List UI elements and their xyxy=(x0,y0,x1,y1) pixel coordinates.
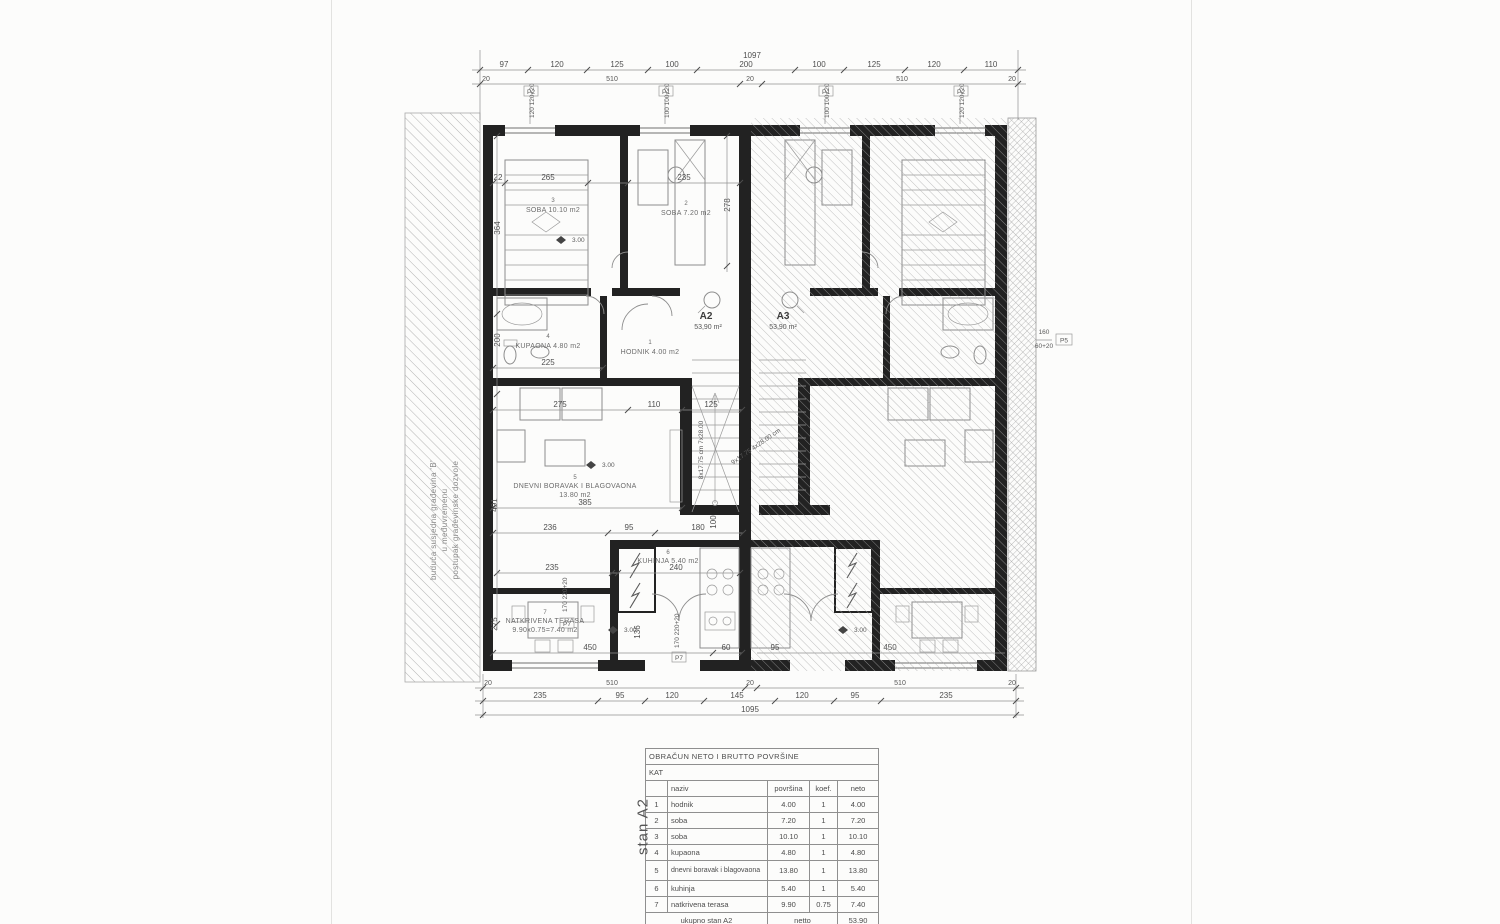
dim-top-seg: 110 xyxy=(985,60,998,69)
dim-top-center: 20 xyxy=(746,76,754,83)
footer-label: ukupno stan A2 xyxy=(646,913,768,924)
window-tag-p1-left-code: P1 xyxy=(662,89,670,96)
row-area: 10.10 xyxy=(768,829,810,845)
room5-label: DNEVNI BORAVAK I BLAGOVAONA xyxy=(513,483,636,490)
row-coef: 1 xyxy=(810,829,838,845)
dim-bot-seg: 235 xyxy=(939,691,953,700)
dim-top-seg: 125 xyxy=(867,60,881,69)
row-coef: 1 xyxy=(810,845,838,861)
unit-a3-name: A3 xyxy=(777,311,790,322)
room4-number: 4 xyxy=(546,334,550,340)
row-net: 10.10 xyxy=(838,829,879,845)
window-tag-p5-code: P5 xyxy=(1060,338,1068,345)
table-title: OBRAČUN NETO I BRUTTO POVRŠINE xyxy=(646,749,879,765)
neighbor-note-line2: u međuvremenu xyxy=(440,488,449,551)
dim-bot-overall: 1095 xyxy=(741,705,759,714)
dim-misc: 240 xyxy=(669,563,683,572)
dim-top-overall: 1097 xyxy=(743,51,761,60)
dim-misc: 180 xyxy=(691,523,705,532)
footer-mid: netto xyxy=(768,913,838,924)
row-net: 13.80 xyxy=(838,861,879,881)
dim-bot-group-left: 510 xyxy=(606,680,618,687)
unit-a3-hatch-overlay xyxy=(751,118,1036,671)
scanned-floor-plan-page: { "scan": { "neighbor_note": { "line1": … xyxy=(0,0,1500,924)
row-area: 4.00 xyxy=(768,797,810,813)
level-mark-soba3: 3.00 xyxy=(572,237,585,244)
room4-label: KUPAONA 4.80 m2 xyxy=(515,343,580,350)
room2-number: 2 xyxy=(684,201,688,207)
dim-misc: 236 xyxy=(543,523,557,532)
window-tag-p2-right-code: P2 xyxy=(957,89,965,96)
dim-bot-seg: 120 xyxy=(795,691,809,700)
door-tag-p7-entry: 170 220+20 xyxy=(674,613,681,648)
dim-bot-edge-left: 20 xyxy=(484,680,492,687)
table-row: 6 kuhinja 5.40 1 5.40 xyxy=(646,881,879,897)
dim-top-group-left: 510 xyxy=(606,76,618,83)
header-naziv: naziv xyxy=(668,781,768,797)
dim-top-edge-left: 20 xyxy=(482,76,490,83)
dim-misc: 136 xyxy=(633,625,642,639)
bottom-dimension-chain: 20 510 20 510 20 235 95 120 145 120 95 2… xyxy=(475,674,1024,718)
dim-top-group-right: 510 xyxy=(896,76,908,83)
unit-a3-area: 53,90 m² xyxy=(769,324,797,331)
table-row: 3 soba 10.10 1 10.10 xyxy=(646,829,879,845)
stair-note-vertical: 8x17.75 cm 7x28.00 xyxy=(698,420,705,479)
neighbor-note-line3: postupak građevinske dozvole xyxy=(451,460,460,579)
row-net: 7.20 xyxy=(838,813,879,829)
room7-label: NATKRIVENA TERASA xyxy=(506,618,585,625)
row-area: 9.90 xyxy=(768,897,810,913)
dim-top-seg: 125 xyxy=(610,60,624,69)
row-name: kupaona xyxy=(668,845,768,861)
row-name: natkrivena terasa xyxy=(668,897,768,913)
dim-top-seg: 100 xyxy=(812,60,826,69)
dim-bot-seg: 95 xyxy=(851,691,860,700)
row-area: 4.80 xyxy=(768,845,810,861)
dim-bot-seg: 120 xyxy=(665,691,679,700)
row-coef: 1 xyxy=(810,881,838,897)
door-tag-p7-entry-code: P7 xyxy=(675,655,683,662)
room1-label: HODNIK 4.00 m2 xyxy=(621,349,680,356)
dim-bot-center: 20 xyxy=(746,680,754,687)
row-net: 4.80 xyxy=(838,845,879,861)
row-name: kuhinja xyxy=(668,881,768,897)
dim-bot-seg: 235 xyxy=(533,691,547,700)
dim-misc: 60 xyxy=(722,643,731,652)
room3-label: SOBA 10.10 m2 xyxy=(526,207,580,214)
dim-top-edge-right: 20 xyxy=(1008,76,1016,83)
dim-bot-seg: 95 xyxy=(616,691,625,700)
unit-a2-area: 53,90 m² xyxy=(694,324,722,331)
row-num: 7 xyxy=(646,897,668,913)
table-subtitle: KAT xyxy=(646,765,879,781)
door-tag-p7-terrace-code: P7 xyxy=(563,621,571,628)
room7-number: 7 xyxy=(543,610,547,616)
dim-misc: 95 xyxy=(771,643,780,652)
row-name: soba xyxy=(668,813,768,829)
room5-number: 5 xyxy=(573,475,577,481)
dim-misc: 235 xyxy=(677,173,691,182)
room3-number: 3 xyxy=(551,198,555,204)
row-name: soba xyxy=(668,829,768,845)
table-header-row: naziv površina koef. neto xyxy=(646,781,879,797)
neighbor-hatch-band: buduća susjedna građevina 'B' u međuvrem… xyxy=(405,113,480,682)
dim-misc: 110 xyxy=(648,400,661,409)
row-coef: 1 xyxy=(810,797,838,813)
dim-misc: 491 xyxy=(490,498,499,512)
dim-misc: 235 xyxy=(545,563,559,572)
dim-misc: 278 xyxy=(723,198,732,212)
window-tag-p5-a: 160 xyxy=(1039,329,1050,336)
footer-value: 53.90 xyxy=(838,913,879,924)
dim-top-seg: 120 xyxy=(550,60,564,69)
dim-top-seg: 200 xyxy=(739,60,753,69)
level-mark-a3: 3.00 xyxy=(854,627,867,634)
window-tag-p1-right-code: P1 xyxy=(822,89,830,96)
row-name: dnevni boravak i blagovaona xyxy=(668,861,768,881)
dim-misc: 200 xyxy=(493,333,502,347)
table-row: 7 natkrivena terasa 9.90 0.75 7.40 xyxy=(646,897,879,913)
header-neto: neto xyxy=(838,781,879,797)
unit-a2-name: A2 xyxy=(700,311,713,322)
table-row: 4 kupaona 4.80 1 4.80 xyxy=(646,845,879,861)
dim-misc: 275 xyxy=(553,400,567,409)
row-net: 7.40 xyxy=(838,897,879,913)
apartment-side-label: stan A2 xyxy=(635,782,652,872)
dim-bot-edge-right: 20 xyxy=(1008,680,1016,687)
row-net: 4.00 xyxy=(838,797,879,813)
header-koef: koef. xyxy=(810,781,838,797)
dim-bot-seg: 145 xyxy=(730,691,744,700)
room1-number: 1 xyxy=(648,340,652,346)
dim-bot-group-right: 510 xyxy=(894,680,906,687)
door-tag-p7-terrace: 170 220+20 xyxy=(562,577,569,612)
dim-top-seg: 120 xyxy=(927,60,941,69)
row-coef: 1 xyxy=(810,813,838,829)
dim-misc: 265 xyxy=(541,173,555,182)
areas-table: OBRAČUN NETO I BRUTTO POVRŠINE KAT naziv… xyxy=(645,748,879,924)
neighbor-note-line1: buduća susjedna građevina 'B' xyxy=(429,460,438,580)
table-row: 1 hodnik 4.00 1 4.00 xyxy=(646,797,879,813)
dim-misc: 95 xyxy=(625,523,634,532)
dim-top-seg: 97 xyxy=(500,60,509,69)
row-name: hodnik xyxy=(668,797,768,813)
row-coef: 1 xyxy=(810,861,838,881)
dim-misc: 385 xyxy=(578,498,592,507)
room2-label: SOBA 7.20 m2 xyxy=(661,210,711,217)
window-tag-p5-b: 60+20 xyxy=(1035,343,1054,350)
row-coef: 0.75 xyxy=(810,897,838,913)
row-area: 13.80 xyxy=(768,861,810,881)
row-net: 5.40 xyxy=(838,881,879,897)
header-povrsina: površina xyxy=(768,781,810,797)
dim-misc: 225 xyxy=(541,358,555,367)
dim-misc: 450 xyxy=(583,643,597,652)
row-num: 6 xyxy=(646,881,668,897)
top-dimension-chain: 1097 97 120 125 100 200 100 125 120 110 … xyxy=(472,50,1026,120)
row-area: 5.40 xyxy=(768,881,810,897)
dim-top-seg: 100 xyxy=(665,60,679,69)
level-mark-living: 3.00 xyxy=(602,462,615,469)
table-row: 2 soba 7.20 1 7.20 xyxy=(646,813,879,829)
row-area: 7.20 xyxy=(768,813,810,829)
room6-label: KUHINJA 5.40 m2 xyxy=(637,558,698,565)
dim-misc: 125 xyxy=(704,400,718,409)
dim-misc: 22 xyxy=(494,173,503,182)
table-footer-row: ukupno stan A2 netto 53.90 xyxy=(646,913,879,924)
table-row: 5 dnevni boravak i blagovaona 13.80 1 13… xyxy=(646,861,879,881)
window-tag-p2-left-code: P2 xyxy=(527,89,535,96)
dim-misc: 364 xyxy=(493,221,502,235)
room6-number: 6 xyxy=(666,550,670,556)
dim-misc: 100 xyxy=(709,515,718,529)
